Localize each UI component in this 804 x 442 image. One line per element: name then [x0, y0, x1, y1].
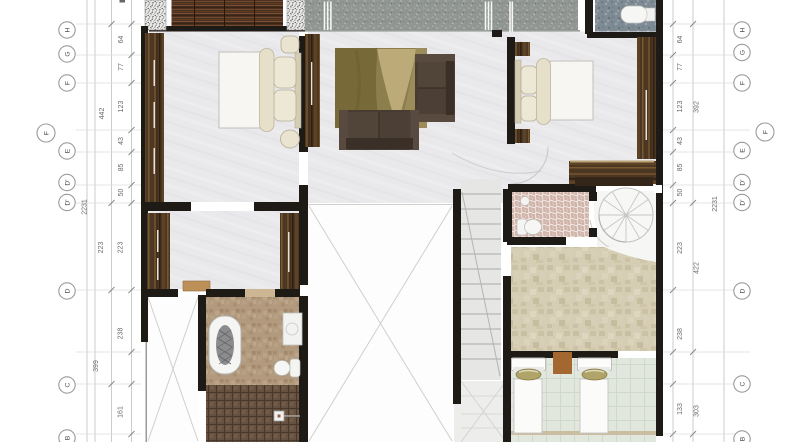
svg-text:43: 43: [677, 137, 684, 145]
svg-text:123: 123: [118, 101, 125, 113]
svg-text:399: 399: [93, 360, 100, 372]
svg-text:77: 77: [118, 63, 125, 71]
svg-text:133: 133: [677, 403, 684, 415]
svg-text:D: D: [739, 288, 746, 293]
svg-text:E: E: [739, 148, 746, 153]
svg-text:442: 442: [99, 108, 106, 120]
svg-text:64: 64: [677, 36, 684, 44]
svg-text:D: D: [64, 288, 71, 293]
svg-text:F: F: [739, 81, 746, 85]
svg-text:85: 85: [677, 164, 684, 172]
svg-text:F: F: [64, 81, 71, 85]
svg-text:E: E: [64, 148, 71, 153]
svg-text:392: 392: [694, 101, 701, 113]
svg-text:303: 303: [694, 405, 701, 417]
svg-text:43: 43: [118, 137, 125, 145]
svg-text:123: 123: [677, 101, 684, 113]
svg-text:77: 77: [677, 63, 684, 71]
svg-text:422: 422: [694, 262, 701, 274]
svg-text:F: F: [762, 130, 769, 134]
svg-text:F: F: [43, 131, 50, 135]
svg-text:G: G: [64, 51, 71, 56]
svg-text:2231: 2231: [712, 196, 719, 212]
svg-text:G: G: [739, 50, 746, 55]
svg-text:D': D': [64, 199, 71, 205]
svg-text:2231: 2231: [82, 199, 89, 215]
svg-text:B: B: [739, 436, 746, 441]
svg-text:B: B: [64, 435, 71, 440]
svg-text:223: 223: [677, 242, 684, 254]
svg-text:D': D': [739, 199, 746, 205]
svg-text:223: 223: [118, 242, 125, 254]
svg-text:H: H: [64, 27, 71, 32]
svg-text:64: 64: [118, 36, 125, 44]
svg-text:C: C: [739, 381, 746, 386]
svg-text:238: 238: [118, 328, 125, 340]
svg-text:D': D': [64, 179, 71, 185]
svg-text:D': D': [739, 179, 746, 185]
svg-text:161: 161: [118, 406, 125, 418]
svg-text:50: 50: [118, 189, 125, 197]
svg-text:238: 238: [677, 328, 684, 340]
svg-text:85: 85: [118, 164, 125, 172]
svg-text:C: C: [64, 382, 71, 387]
svg-text:50: 50: [677, 189, 684, 197]
svg-text:H: H: [739, 27, 746, 32]
svg-text:223: 223: [98, 242, 105, 254]
